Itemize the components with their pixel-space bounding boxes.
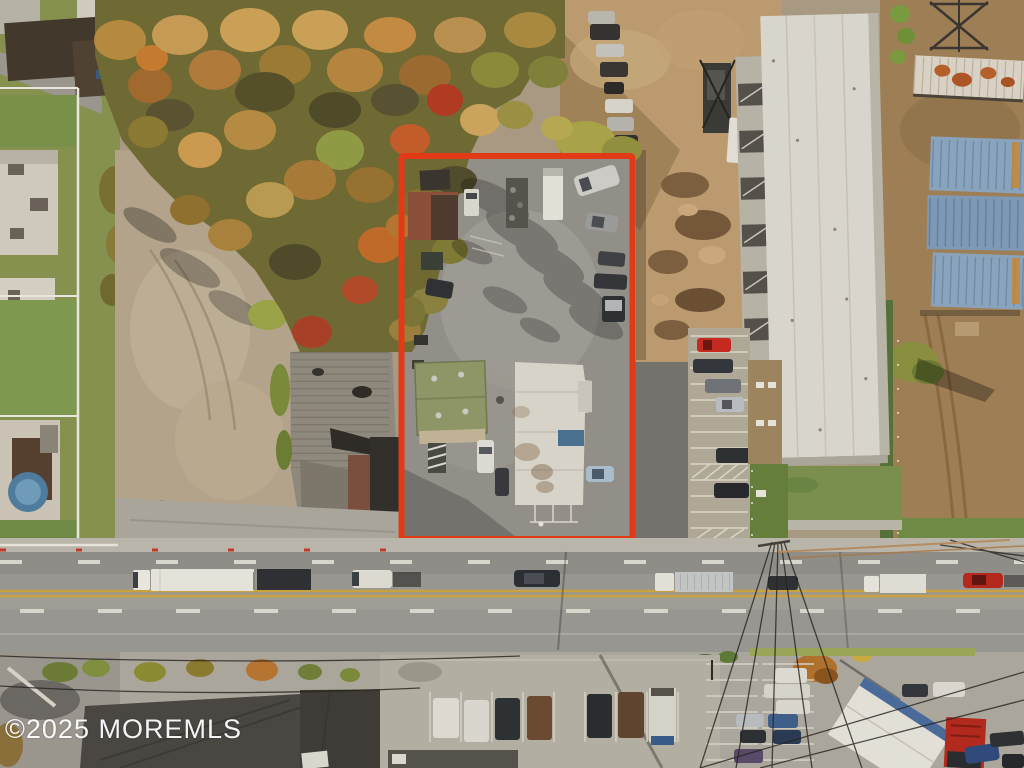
flatbed-trailer bbox=[506, 178, 528, 228]
dark-trailer bbox=[257, 569, 311, 590]
dirt-yard-right bbox=[880, 0, 1024, 548]
blue-roof-section bbox=[558, 430, 584, 446]
storefront-facade bbox=[748, 360, 782, 464]
rusted-container bbox=[913, 55, 1024, 101]
white-sedan bbox=[477, 440, 494, 473]
shed bbox=[419, 169, 450, 191]
red-car bbox=[697, 338, 731, 352]
highway bbox=[0, 538, 1024, 652]
grass-strip bbox=[770, 466, 902, 520]
parked-box-truck bbox=[649, 688, 676, 745]
aerial-listing-photo: ©2025 MOREMLS bbox=[0, 0, 1024, 768]
semi-truck bbox=[133, 569, 254, 591]
dumpster bbox=[421, 252, 443, 270]
white-box-truck bbox=[864, 574, 926, 593]
aerial-scene bbox=[0, 0, 1024, 768]
red-maple-tree bbox=[427, 84, 463, 116]
blue-containers bbox=[920, 136, 1024, 316]
watermark: ©2025 MOREMLS bbox=[5, 714, 242, 745]
striped-awning bbox=[428, 443, 446, 473]
silver-box-truck bbox=[655, 572, 733, 592]
white-cupola bbox=[301, 751, 329, 768]
bottom-center-parking bbox=[380, 655, 720, 768]
green-roof-building bbox=[415, 361, 488, 444]
